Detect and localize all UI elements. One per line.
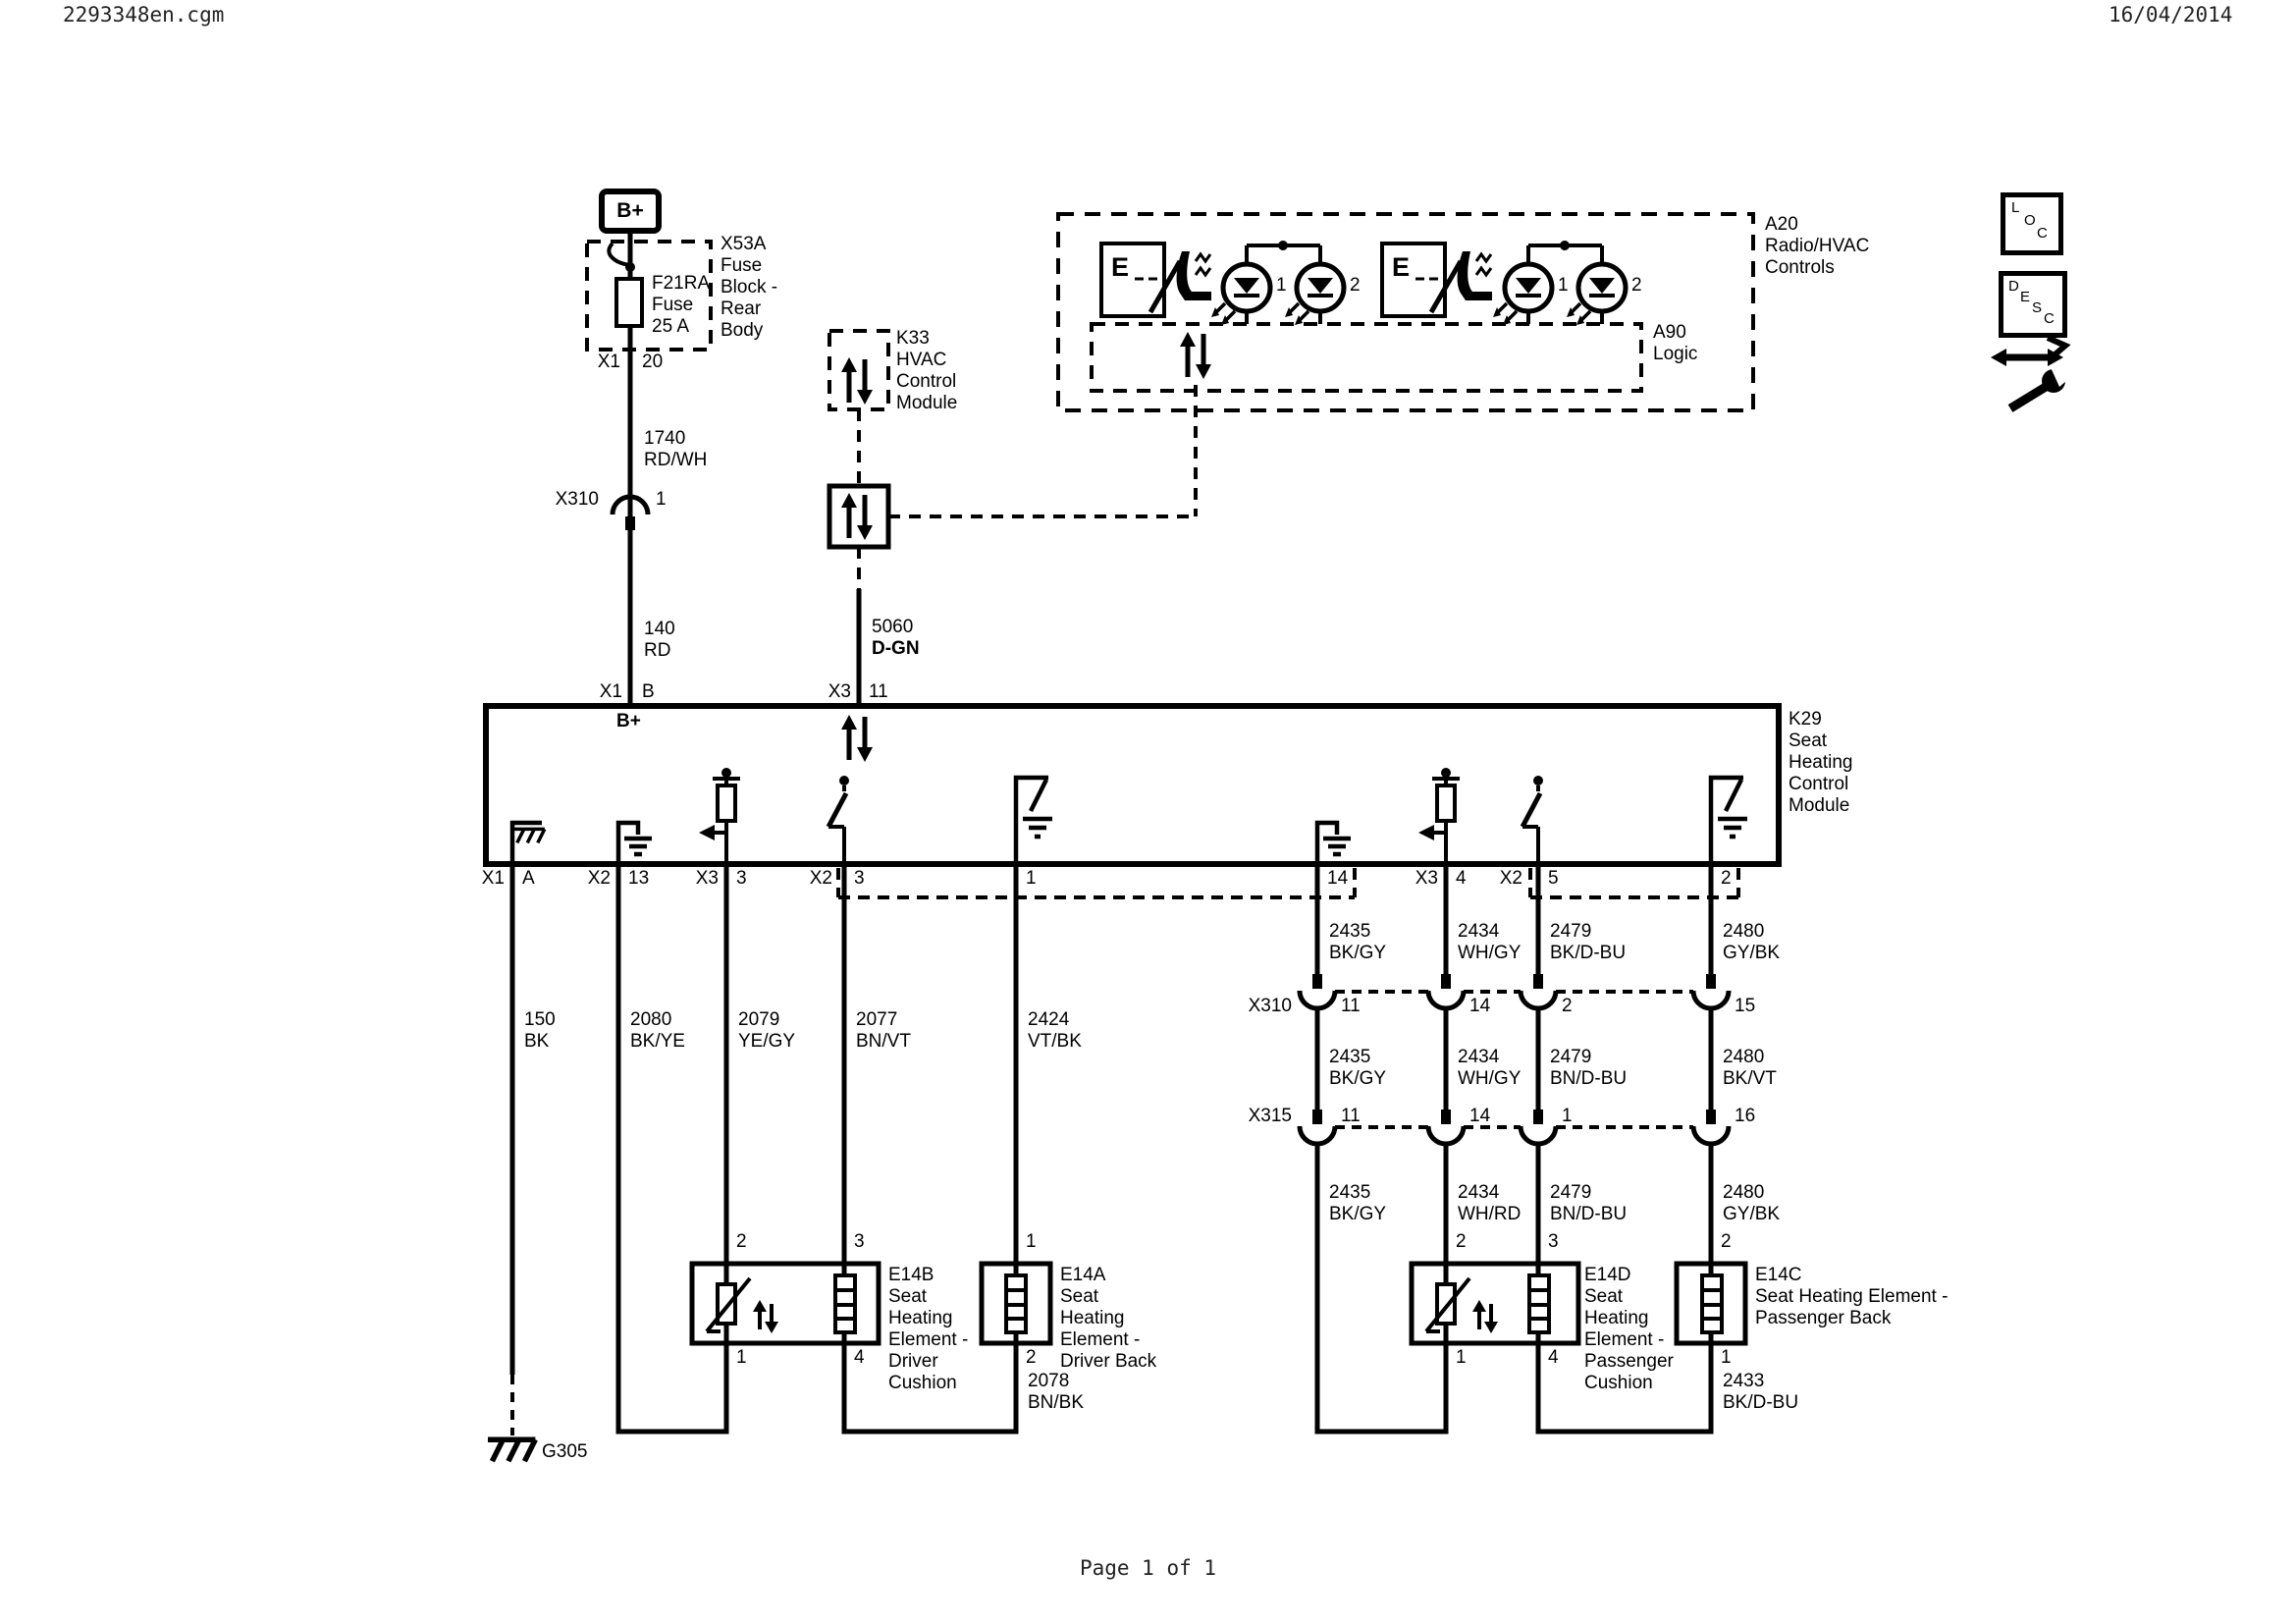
serial-data-arrows-icon xyxy=(841,715,873,762)
pin-number: 2 xyxy=(1456,1231,1467,1253)
wire-number: 2433 xyxy=(1723,1371,1798,1392)
wire-color: BK/GY xyxy=(1329,943,1386,964)
a90-box xyxy=(1092,324,1641,391)
wire-label-2479: 2479 BN/D-BU xyxy=(1550,1182,1627,1225)
pin-number: 1 xyxy=(1456,1347,1467,1369)
wire-number: 5060 xyxy=(872,617,920,638)
pin-number: 3 xyxy=(854,1231,865,1253)
pin-number: 2 xyxy=(736,1231,747,1253)
connector-name: X310 xyxy=(530,489,599,511)
wire-number: 2078 xyxy=(1028,1371,1084,1392)
pin-number: 4 xyxy=(854,1347,865,1369)
pin-number: 1 xyxy=(656,489,667,511)
pin-number: A xyxy=(522,868,535,890)
wire-label-2077: 2077 BN/VT xyxy=(856,1009,911,1053)
harness-repair-icon xyxy=(1991,338,2073,408)
wire-label-140: 140 RD xyxy=(644,619,675,662)
wire-color: BN/D-BU xyxy=(1550,1204,1627,1225)
pin-connector-label: X2 xyxy=(1473,868,1522,890)
led-number: 1 xyxy=(1276,275,1287,297)
pin-number: 20 xyxy=(642,352,663,373)
inline-connector-icon xyxy=(1521,1110,1556,1149)
wire-label-1740: 1740 RD/WH xyxy=(644,428,707,471)
pin-number: 1 xyxy=(1026,1231,1037,1253)
inline-connector-icon xyxy=(1428,974,1464,1013)
led-number: 2 xyxy=(1350,275,1361,297)
desc-letter: D xyxy=(2008,278,2019,295)
e14d-label: E14DSeatHeatingElement -PassengerCushion xyxy=(1584,1265,1674,1394)
pin-number: 3 xyxy=(1548,1231,1559,1253)
wire-number: 2479 xyxy=(1550,1047,1627,1068)
temperature-sensor-icon xyxy=(1426,1278,1498,1333)
heated-seat-icon xyxy=(1458,251,1492,300)
pin-number: 1 xyxy=(1721,1347,1732,1369)
heating-element-icon xyxy=(1529,1275,1549,1332)
wire-label-2434: 2434 WH/GY xyxy=(1458,921,1521,964)
pin-number: 1 xyxy=(1562,1106,1573,1127)
connector-name: X315 xyxy=(1217,1106,1292,1127)
wire-label-2434: 2434 WH/RD xyxy=(1458,1182,1521,1225)
heated-seat-icon xyxy=(1177,251,1211,300)
chassis-ground-icon xyxy=(514,829,545,842)
pin-number: 14 xyxy=(1469,1106,1490,1127)
e14a-label: E14ASeatHeatingElement -Driver Back xyxy=(1060,1265,1156,1373)
wire-number: 2079 xyxy=(738,1009,795,1031)
wire-label-2078: 2078 BN/BK xyxy=(1028,1371,1084,1414)
inline-connector-icon xyxy=(1300,1110,1335,1149)
wire-number: 2479 xyxy=(1550,1182,1627,1204)
wire-number: 2077 xyxy=(856,1009,911,1031)
wire-number: 1740 xyxy=(644,428,707,450)
wire-color: GY/BK xyxy=(1723,943,1780,964)
wire-number: 2424 xyxy=(1028,1009,1082,1031)
wire-number: 2434 xyxy=(1458,1047,1521,1068)
wire-label-2079: 2079 YE/GY xyxy=(738,1009,795,1053)
wire-color: BK/D-BU xyxy=(1550,943,1626,964)
pin-connector-label: X1 xyxy=(571,352,620,373)
wire-color: WH/RD xyxy=(1458,1204,1521,1225)
wire-label-2480: 2480 GY/BK xyxy=(1723,921,1780,964)
wire-color: BN/BK xyxy=(1028,1392,1084,1414)
wire-color: BN/D-BU xyxy=(1550,1068,1627,1090)
switch-letter: E xyxy=(1392,253,1410,281)
loc-legend-icon: L O C xyxy=(2001,192,2063,255)
page-number: Page 1 of 1 xyxy=(0,1555,2296,1581)
wire-label-150: 150 BK xyxy=(524,1009,556,1053)
wire-number: 2480 xyxy=(1723,1182,1780,1204)
led-indicator-icon xyxy=(1211,256,1270,325)
switch-letter: E xyxy=(1111,253,1129,281)
pin-number: 11 xyxy=(1341,1106,1361,1127)
sensor-resistor-icon xyxy=(699,768,740,864)
wire-label-2080: 2080 BK/YE xyxy=(630,1009,685,1053)
pin-number: 11 xyxy=(869,681,888,703)
inline-connector-icon xyxy=(1693,974,1729,1013)
wire-number: 2080 xyxy=(630,1009,685,1031)
e14c-label: E14CSeat Heating Element -Passenger Back xyxy=(1755,1265,1948,1329)
wire-number: 2435 xyxy=(1329,921,1386,943)
switch-icon xyxy=(1522,776,1543,864)
wire-color: BK/YE xyxy=(630,1031,685,1053)
pin-number: 4 xyxy=(1456,868,1467,890)
file-name: 2293348en.cgm xyxy=(63,2,224,27)
pin-number: B xyxy=(642,681,655,703)
k33-box xyxy=(829,331,888,409)
desc-legend-icon: D E S C xyxy=(1999,271,2067,338)
wire-color: BK/GY xyxy=(1329,1068,1386,1090)
pin-connector-label: X2 xyxy=(561,868,611,890)
inline-connector-icon xyxy=(1300,974,1335,1013)
earth-ground-icon xyxy=(618,823,652,864)
serial-data-arrows-icon xyxy=(1180,332,1211,379)
wire-number: 2435 xyxy=(1329,1182,1386,1204)
switch-to-ground-icon xyxy=(1016,778,1052,864)
wire-label-2424: 2424 VT/BK xyxy=(1028,1009,1082,1053)
switch-icon xyxy=(828,776,849,864)
pin-number: 1 xyxy=(1026,868,1037,890)
serial-dashed-wires xyxy=(859,385,1196,589)
led-number: 1 xyxy=(1558,275,1569,297)
wire-color: RD/WH xyxy=(644,450,707,471)
k33-label: K33HVACControlModule xyxy=(896,328,957,414)
switch-to-ground-icon xyxy=(1711,778,1747,864)
wire-label-2479: 2479 BN/D-BU xyxy=(1550,1047,1627,1090)
pin-connector-label: X3 xyxy=(1389,868,1438,890)
pin-number: 2 xyxy=(1562,996,1573,1017)
a20-label: A20Radio/HVACControls xyxy=(1765,214,1869,279)
wire-color: VT/BK xyxy=(1028,1031,1082,1053)
pin-connector-label: X3 xyxy=(669,868,719,890)
wire-label-2480: 2480 GY/BK xyxy=(1723,1182,1780,1225)
pin-connector-label: X3 xyxy=(802,681,851,703)
schematic-art xyxy=(0,0,2296,1624)
pin-number: 14 xyxy=(1327,868,1348,890)
chassis-ground-icon xyxy=(488,1439,535,1461)
k29-label: K29SeatHeatingControlModule xyxy=(1789,709,1853,817)
pin-connector-label: X2 xyxy=(783,868,832,890)
pin-number: 11 xyxy=(1341,996,1361,1017)
wire-color: BK/VT xyxy=(1723,1068,1777,1090)
desc-letter: E xyxy=(2020,289,2030,305)
wire-label-2435: 2435 BK/GY xyxy=(1329,1047,1386,1090)
pin-number: 4 xyxy=(1548,1347,1559,1369)
wire-number: 2434 xyxy=(1458,921,1521,943)
a90-label: A90Logic xyxy=(1653,322,1697,365)
pin-number: 5 xyxy=(1548,868,1559,890)
desc-letter: S xyxy=(2032,299,2042,316)
wiring-diagram-page: 2293348en.cgm 16/04/2014 Page 1 of 1 L O… xyxy=(0,0,2296,1624)
wire-number: 140 xyxy=(644,619,675,640)
wire-color: YE/GY xyxy=(738,1031,795,1053)
loc-letter: C xyxy=(2037,225,2048,242)
wire-number: 150 xyxy=(524,1009,556,1031)
heating-element-icon xyxy=(1006,1275,1026,1332)
bplus-internal-label: B+ xyxy=(616,711,641,732)
inline-connector-icon xyxy=(1428,1110,1464,1149)
ground-label: G305 xyxy=(542,1441,587,1463)
date-stamp: 16/04/2014 xyxy=(2109,2,2232,27)
led-bus-driver xyxy=(1247,241,1320,257)
inline-connector-icon xyxy=(1521,974,1556,1013)
wire-label-2433: 2433 BK/D-BU xyxy=(1723,1371,1798,1414)
wire-color: BK/GY xyxy=(1329,1204,1386,1225)
wire-number: 2479 xyxy=(1550,921,1626,943)
k29-box xyxy=(486,706,1779,864)
led-indicator-icon xyxy=(1285,256,1344,325)
pin-number: 14 xyxy=(1469,996,1490,1017)
desc-letter: C xyxy=(2044,310,2055,327)
wire-color: WH/GY xyxy=(1458,1068,1521,1090)
fuse-symbol xyxy=(609,244,642,326)
inline-connector-icon xyxy=(1693,1110,1729,1149)
fuse-block-label: X53AFuseBlock -RearBody xyxy=(721,234,777,342)
led-bus-passenger xyxy=(1528,241,1602,257)
wire-color: WH/GY xyxy=(1458,943,1521,964)
earth-ground-icon xyxy=(1317,823,1351,864)
heating-element-icon xyxy=(1702,1275,1722,1332)
sensor-resistor-icon xyxy=(1418,768,1460,864)
wire-color: BK xyxy=(524,1031,556,1053)
wire-label-2435: 2435 BK/GY xyxy=(1329,1182,1386,1225)
connector-name: X310 xyxy=(1217,996,1292,1017)
pin-number: 13 xyxy=(628,868,649,890)
wire-number: 2480 xyxy=(1723,1047,1777,1068)
pin-number: 3 xyxy=(854,868,865,890)
heating-element-icon xyxy=(835,1275,855,1332)
serial-data-arrows-icon xyxy=(841,493,873,540)
pin-connector-label: X1 xyxy=(455,868,505,890)
wire-color: RD xyxy=(644,640,675,662)
pin-number: 2 xyxy=(1721,868,1732,890)
wire-color: GY/BK xyxy=(1723,1204,1780,1225)
wire-label-5060: 5060 D-GN xyxy=(872,617,920,660)
pin-number: 2 xyxy=(1026,1347,1037,1369)
e14b-label: E14BSeatHeatingElement -DriverCushion xyxy=(888,1265,968,1394)
pin-number: 2 xyxy=(1721,1231,1732,1253)
temperature-sensor-icon xyxy=(707,1278,778,1333)
pin-number: 3 xyxy=(736,868,747,890)
pin-number: 1 xyxy=(736,1347,747,1369)
pin-connector-label: X1 xyxy=(573,681,622,703)
wire-number: 2480 xyxy=(1723,921,1780,943)
pin-number: 16 xyxy=(1735,1106,1755,1127)
shield-dashed-links xyxy=(838,868,1738,897)
wire-color: BK/D-BU xyxy=(1723,1392,1798,1414)
wire-label-2480: 2480 BK/VT xyxy=(1723,1047,1777,1090)
led-indicator-icon xyxy=(1567,256,1626,325)
serial-link-box xyxy=(829,486,888,547)
loc-letter: L xyxy=(2011,199,2019,216)
battery-terminal: B+ xyxy=(599,189,662,234)
serial-data-arrows-icon xyxy=(841,357,873,405)
wire-color: D-GN xyxy=(872,638,920,660)
wire-number: 2435 xyxy=(1329,1047,1386,1068)
loc-letter: O xyxy=(2024,212,2036,229)
wire-color: BN/VT xyxy=(856,1031,911,1053)
wire-label-2435: 2435 BK/GY xyxy=(1329,921,1386,964)
led-number: 2 xyxy=(1631,275,1642,297)
wire-label-2434: 2434 WH/GY xyxy=(1458,1047,1521,1090)
wire-number: 2434 xyxy=(1458,1182,1521,1204)
fuse-label: F21RAFuse25 A xyxy=(652,273,710,338)
wire-label-2479: 2479 BK/D-BU xyxy=(1550,921,1626,964)
led-indicator-icon xyxy=(1493,256,1552,325)
pin-number: 15 xyxy=(1735,996,1755,1017)
